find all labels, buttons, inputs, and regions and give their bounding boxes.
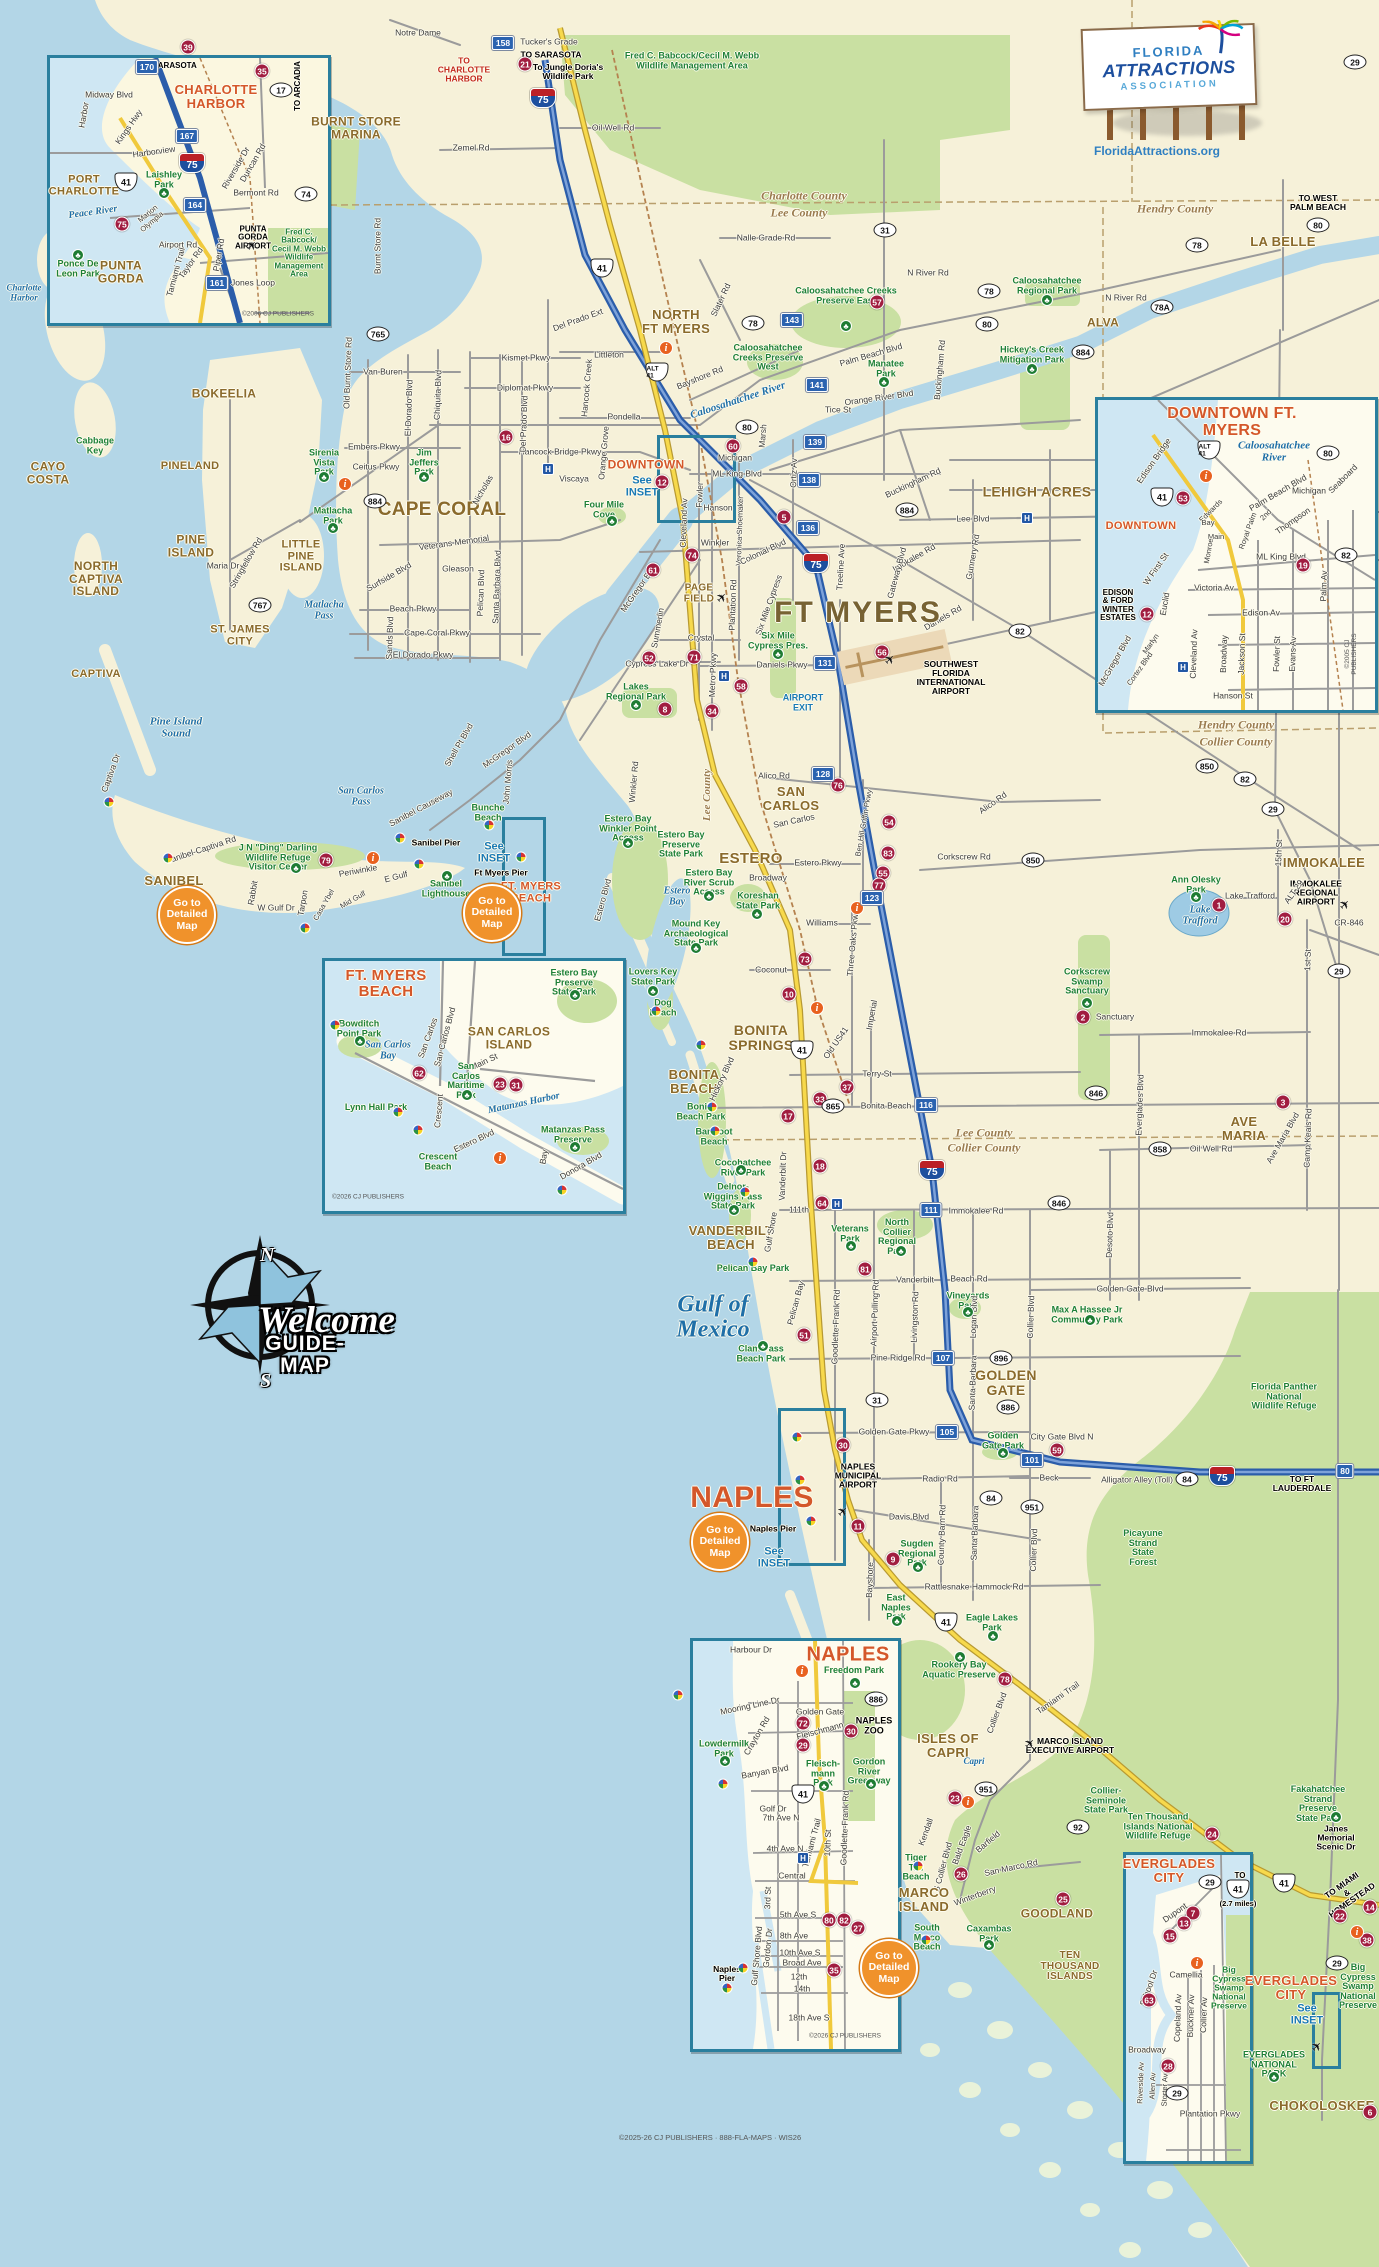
label-copeland-av: Copeland Av	[1173, 1994, 1184, 2042]
us-route-shield-41: 41	[792, 1785, 815, 1804]
label-freedom-park: Freedom Park	[824, 1666, 884, 1676]
attraction-marker-63[interactable]: 63	[1142, 1993, 1157, 2008]
label-el-dorado-blvd: El Dorado Blvd	[404, 380, 415, 437]
attraction-marker-58[interactable]: 58	[734, 679, 749, 694]
label-fowler-st: Fowler St	[1272, 636, 1282, 672]
attraction-marker-19[interactable]: 19	[1296, 558, 1311, 573]
label-north-ft-myers: NORTH FT MYERS	[642, 308, 710, 336]
attraction-marker-5[interactable]: 5	[777, 510, 792, 525]
label-st-james-city: ST. JAMES CITY	[210, 624, 270, 647]
state-route-shield-765: 765	[367, 327, 390, 342]
label-downtown: DOWNTOWN	[608, 459, 685, 472]
label-see-inset[interactable]: See INSET	[478, 841, 510, 864]
attraction-marker-3[interactable]: 3	[1276, 1095, 1291, 1110]
us-route-shield-41: 41	[791, 1041, 814, 1060]
county-route-shield-167: 167	[176, 129, 198, 143]
label-allen-av: Allen Av	[1149, 2072, 1158, 2099]
label-gordon-dr: Gordon Dr	[762, 1928, 774, 1968]
attraction-marker-51[interactable]: 51	[797, 1328, 812, 1343]
attraction-marker-9[interactable]: 9	[886, 1552, 901, 1567]
label-coconut: Coconut	[755, 966, 787, 975]
label-charlotte-harbor: CHARLOTTE HARBOR	[175, 83, 258, 111]
info-icon[interactable]: i	[795, 1664, 809, 1678]
state-route-shield-29: 29	[1199, 1875, 1222, 1890]
attraction-marker-28[interactable]: 28	[1161, 2059, 1176, 2074]
label-cabbage-key: Cabbage Key	[76, 436, 114, 455]
attraction-marker-79[interactable]: 79	[319, 853, 334, 868]
attraction-marker-62[interactable]: 62	[412, 1066, 427, 1081]
park-tree-icon: ♣	[818, 1780, 830, 1792]
attraction-marker-34[interactable]: 34	[705, 704, 720, 719]
attraction-marker-30[interactable]: 30	[836, 1438, 851, 1453]
label-lake-trafford: Lake Trafford	[1225, 892, 1275, 901]
us-route-shield-alt-41: ALT 41	[646, 363, 669, 382]
label-to-charlotte-harbor: TO CHARLOTTE HARBOR	[438, 57, 490, 84]
park-tree-icon: ♣	[1330, 1811, 1342, 1823]
county-route-shield-170: 170	[136, 60, 158, 74]
label-e-gulf: E Gulf	[383, 870, 408, 885]
beach-access-icon	[330, 1020, 341, 1031]
attraction-marker-25[interactable]: 25	[1056, 1892, 1071, 1907]
beach-access-icon	[300, 923, 311, 934]
hospital-icon: H	[718, 670, 730, 682]
label-n-river-rd: N River Rd	[1105, 294, 1147, 303]
state-route-shield-884: 884	[1072, 345, 1095, 360]
attraction-marker-30[interactable]: 30	[844, 1724, 859, 1739]
label-downtown: DOWNTOWN	[1106, 521, 1177, 533]
label-hendry-county: Hendry County	[1137, 203, 1213, 216]
park-tree-icon: ♣	[461, 1089, 473, 1101]
park-tree-icon: ♣	[845, 1240, 857, 1252]
attraction-marker-26[interactable]: 26	[954, 1867, 969, 1882]
label-broad-ave: Broad Ave	[782, 1959, 821, 1968]
info-icon[interactable]: i	[810, 1001, 824, 1015]
attraction-marker-31[interactable]: 31	[509, 1078, 524, 1093]
label-riverside-av: Riverside Av	[1136, 2062, 1145, 2104]
beach-access-icon	[163, 853, 174, 864]
beach-access-icon	[484, 820, 495, 831]
label-tamiami-trail: Tamiami Trail	[1035, 1680, 1081, 1716]
beach-access-icon	[651, 1006, 662, 1017]
label-3rd-st: 3rd St	[763, 1887, 773, 1910]
attraction-marker-1[interactable]: 1	[1212, 898, 1227, 913]
attraction-marker-57[interactable]: 57	[870, 295, 885, 310]
label-gulf-shore: Gulf Shore	[763, 1211, 779, 1253]
county-route-shield-161: 161	[206, 276, 228, 290]
label-slater-rd: Slater Rd	[709, 282, 732, 318]
label-bay: Bay	[538, 1149, 549, 1165]
label-collier-seminole-state-park: Collier- Seminole State Park	[1084, 1787, 1128, 1816]
attraction-marker-72[interactable]: 72	[796, 1716, 811, 1731]
attraction-marker-39[interactable]: 39	[181, 40, 196, 55]
attraction-marker-73[interactable]: 73	[798, 952, 813, 967]
label-bay: Bay	[1202, 519, 1215, 527]
attraction-marker-83[interactable]: 83	[881, 846, 896, 861]
county-route-shield-138: 138	[798, 473, 820, 487]
label-casa-ybel: Casa Ybel	[312, 888, 336, 922]
label-naples: NAPLES	[807, 1644, 890, 1665]
label-harborview: Harborview	[132, 145, 176, 160]
attraction-marker-80[interactable]: 80	[822, 1913, 837, 1928]
state-route-shield-78: 78	[978, 284, 1001, 299]
attraction-marker-11[interactable]: 11	[851, 1519, 866, 1534]
label-surfside-blvd: Surfside Blvd	[365, 561, 413, 594]
label-peace-river: Peace River	[68, 204, 118, 221]
park-tree-icon: ♣	[849, 1677, 861, 1689]
label-collier-blvd: Collier Blvd	[1026, 1295, 1036, 1338]
label-captiva: CAPTIVA	[71, 669, 121, 681]
hospital-icon: H	[831, 1198, 843, 1210]
info-icon[interactable]: i	[338, 477, 352, 491]
state-route-shield-29: 29	[1344, 55, 1367, 70]
label-matanzas-harbor: Matanzas Harbor	[487, 1091, 561, 1117]
attraction-marker-61[interactable]: 61	[646, 563, 661, 578]
label-5th-ave-s: 5th Ave S	[780, 1911, 816, 1920]
state-route-shield-82: 82	[1234, 772, 1257, 787]
label-van-buren: Van Buren	[363, 368, 403, 377]
attraction-marker-23[interactable]: 23	[493, 1077, 508, 1092]
label-collier-county: Collier County	[947, 1142, 1020, 1155]
label-crescent-beach: Crescent Beach	[419, 1152, 458, 1171]
go-to-detailed-map-button[interactable]: Go to Detailed Map	[860, 1939, 918, 1997]
label-fred-c-babcock-cecil-m-webb-wildlife-man: Fred C. Babcock/ Cecil M. Webb Wildlife …	[272, 229, 326, 280]
beach-access-icon	[792, 1432, 803, 1443]
label-north-captiva-island: NORTH CAPTIVA ISLAND	[69, 560, 123, 598]
label-estero: ESTERO	[719, 851, 782, 867]
county-route-shield-141: 141	[806, 378, 828, 392]
beach-access-icon	[738, 1963, 749, 1974]
county-route-shield-101: 101	[1021, 1453, 1043, 1467]
label-veterans-memorial: Veterans Memorial	[418, 534, 489, 553]
label-ave-maria: AVE MARIA	[1222, 1115, 1266, 1143]
label-page-field: PAGE FIELD	[684, 583, 714, 604]
attraction-marker-27[interactable]: 27	[851, 1921, 866, 1936]
label-embers-pkwy: Embers Pkwy	[348, 443, 400, 452]
county-route-shield-128: 128	[812, 767, 834, 781]
label-marco-island: MARCO ISLAND	[899, 1886, 950, 1914]
attraction-marker-60[interactable]: 60	[726, 439, 741, 454]
label-terry-st: Terry St	[862, 1070, 891, 1079]
label-collier-county: Collier County	[1199, 736, 1272, 749]
park-tree-icon: ♣	[1084, 1314, 1096, 1326]
label-beck: Beck	[1040, 1474, 1059, 1483]
beach-access-icon	[748, 1257, 759, 1268]
attraction-marker-15[interactable]: 15	[1163, 1929, 1178, 1944]
label-ponce-de-leon-park: Ponce De Leon Park	[56, 259, 100, 278]
label-winkler: Winkler	[701, 539, 729, 548]
state-route-shield-80: 80	[1307, 218, 1330, 233]
attraction-marker-17[interactable]: 17	[781, 1109, 796, 1124]
label-san-marco-rd: San Marco Rd	[983, 1858, 1038, 1878]
park-tree-icon: ♣	[569, 989, 581, 1001]
attraction-marker-22[interactable]: 22	[1333, 1909, 1348, 1924]
beach-access-icon	[104, 797, 115, 808]
label-to-ft-lauderdale: TO FT LAUDERDALE	[1264, 1475, 1341, 1493]
beach-access-icon	[413, 1125, 424, 1136]
label-estero-bay-preserve-state-park: Estero Bay Preserve State Park	[657, 831, 704, 860]
label-vanderbilt-dr: Vanderbilt Dr	[778, 1151, 789, 1200]
label-capri: Capri	[963, 1757, 984, 1767]
label-kings-hwy: Kings Hwy	[114, 108, 144, 146]
label-marsh: Marsh	[757, 424, 768, 448]
label-santa-barbara-blvd: Santa Barbara Blvd	[491, 550, 503, 624]
label-n-river-rd: N River Rd	[907, 269, 949, 278]
label-downtown-ft-myers: DOWNTOWN FT. MYERS	[1159, 406, 1306, 440]
label-san-carlos-bay: San Carlos Bay	[365, 1040, 411, 1061]
label-2005-cj-publishers: ©2005 CJ PUBLISHERS	[1345, 633, 1359, 674]
attraction-marker-52[interactable]: 52	[642, 651, 657, 666]
attraction-marker-8[interactable]: 8	[658, 702, 673, 717]
go-to-detailed-map-button[interactable]: Go to Detailed Map	[691, 1513, 749, 1571]
attraction-marker-12[interactable]: 12	[1140, 607, 1155, 622]
label-del-prado-ext: Del Prado Ext	[552, 307, 604, 333]
label-see-inset[interactable]: See INSET	[758, 1546, 790, 1569]
label-hickey-s-creek-mitigation-park: Hickey's Creek Mitigation Park	[1000, 345, 1065, 364]
label-periwinkle: Periwinkle	[338, 863, 378, 879]
county-route-shield-80: 80	[1336, 1464, 1353, 1478]
info-icon[interactable]: i	[366, 851, 380, 865]
attraction-marker-53[interactable]: 53	[1176, 491, 1191, 506]
label-naples-pier: Naples Pier	[750, 1525, 796, 1534]
beach-access-icon	[696, 1040, 707, 1051]
label-metro-pkwy: Metro Pkwy	[708, 653, 719, 698]
label-beach-rd: Beach Rd	[950, 1275, 987, 1284]
park-tree-icon: ♣	[1190, 891, 1202, 903]
label-barfield: Barfield	[974, 1829, 1002, 1854]
label-big-cypress-swamp-national-preserve: Big Cypress Swamp National Preserve	[1211, 1966, 1247, 2011]
interstate-75-shield: 75	[530, 88, 556, 108]
label-10th-st: 10th St	[823, 1829, 833, 1856]
label-jackson-st: Jackson St	[1237, 633, 1247, 675]
interstate-75-shield: 75	[919, 1160, 945, 1180]
label-ben-hill-griffin-pkwy: Ben Hill Griffin Pkwy	[854, 789, 874, 857]
label-8th-ave: 8th Ave	[780, 1932, 808, 1941]
label-goodlette-frank-rd: Goodlette-Frank Rd	[839, 1791, 851, 1866]
label-cayo-costa: CAYO COSTA	[27, 460, 70, 485]
label-la-belle: LA BELLE	[1250, 235, 1315, 249]
attraction-marker-18[interactable]: 18	[813, 1159, 828, 1174]
label-burnt-store-marina: BURNT STORE MARINA	[311, 115, 401, 140]
attraction-marker-16[interactable]: 16	[499, 430, 514, 445]
label-cleveland-av: Cleveland Av	[1189, 629, 1200, 679]
label-san-carlos-blvd: San Carlos Blvd	[433, 1006, 457, 1067]
attraction-marker-10[interactable]: 10	[782, 987, 797, 1002]
label-crescent: Crescent	[433, 1094, 445, 1129]
label-buckner-av: Buckner Av	[1186, 1994, 1196, 2037]
attraction-marker-12[interactable]: 12	[655, 475, 670, 490]
label-lee-county: Lee County	[702, 769, 714, 821]
attraction-marker-24[interactable]: 24	[1205, 1827, 1220, 1842]
park-tree-icon: ♣	[962, 1306, 974, 1318]
beach-access-icon	[921, 1935, 932, 1946]
park-tree-icon: ♣	[1026, 363, 1038, 375]
label-w-first-st: W First St	[1142, 551, 1171, 587]
state-route-shield-846: 846	[1048, 1196, 1071, 1211]
attraction-marker-82[interactable]: 82	[837, 1913, 852, 1928]
label-williams: Williams	[806, 919, 838, 928]
label-pine-island-sound: Pine Island Sound	[150, 716, 202, 739]
state-route-shield-886: 886	[865, 1692, 888, 1707]
attraction-marker-54[interactable]: 54	[882, 815, 897, 830]
label-corkscrew-swamp-sanctuary: Corkscrew Swamp Sanctuary	[1064, 968, 1110, 997]
label-treeline-ave: Treeline Ave	[835, 543, 846, 590]
label-caloosahatchee-regional-park: Caloosahatchee Regional Park	[1012, 276, 1081, 295]
attraction-marker-13[interactable]: 13	[1177, 1916, 1192, 1931]
label-rookery-bay-aquatic-preserve: Rookery Bay Aquatic Preserve	[922, 1660, 996, 1679]
attraction-marker-78[interactable]: 78	[998, 1672, 1013, 1687]
label-monroe: Monroe	[1203, 538, 1215, 564]
info-icon[interactable]: i	[961, 1795, 975, 1809]
label-matlacha-pass: Matlacha Pass	[304, 600, 343, 621]
state-route-shield-78A: 78A	[1151, 300, 1174, 315]
label-port-charlotte: PORT CHARLOTTE	[49, 174, 120, 197]
label-notre-dame: Notre Dame	[395, 29, 441, 38]
label-pine-island: PINE ISLAND	[168, 533, 214, 558]
label-buckingham-rd: Buckingham Rd	[884, 466, 942, 500]
info-icon[interactable]: i	[659, 341, 673, 355]
label-see-inset[interactable]: See INSET	[626, 475, 658, 498]
park-tree-icon: ♣	[997, 1447, 1009, 1459]
label-2006-cj-publishers: ©2006 CJ PUBLISHERS	[242, 312, 314, 319]
label-estero-pkwy: Estero Pkwy	[794, 859, 841, 868]
attraction-marker-2[interactable]: 2	[1076, 1010, 1091, 1025]
label-ave-maria-blvd: Ave Maria Blvd	[1265, 1111, 1301, 1165]
label-alligator-alley-toll: Alligator Alley (Toll)	[1101, 1476, 1173, 1485]
label-1st-st: 1st St	[1303, 949, 1313, 971]
airport-icon: ✈	[1307, 2037, 1326, 2056]
attraction-marker-75[interactable]: 75	[115, 217, 130, 232]
attraction-marker-6[interactable]: 6	[1363, 2105, 1378, 2120]
attraction-marker-64[interactable]: 64	[815, 1196, 830, 1211]
us-route-shield-41: 41	[115, 173, 138, 192]
label-everglades-city: EVERGLADES CITY	[1245, 1974, 1338, 2002]
label-charlotte-county: Charlotte County	[761, 190, 847, 203]
label-chokoloskee: CHOKOLOSKEE	[1269, 2099, 1374, 2113]
label-2-7-miles: (2.7 miles)	[1220, 1900, 1257, 1908]
label-gateway-blvd: Gateway Blvd	[886, 547, 908, 600]
label-bald-eagle: Bald Eagle	[951, 1824, 974, 1866]
info-icon[interactable]: i	[1199, 469, 1213, 483]
labels-layer: Notre DameTucker's GradeTO SARASOTATo Ju…	[0, 0, 1379, 2267]
park-tree-icon: ♣	[751, 908, 763, 920]
park-tree-icon: ♣	[772, 648, 784, 660]
county-route-shield-136: 136	[797, 521, 819, 535]
park-tree-icon: ♣	[865, 1778, 877, 1790]
label-camp-keais-rd: Camp Keais Rd	[1302, 1108, 1313, 1168]
label-michigan: Michigan	[718, 454, 752, 463]
attraction-marker-81[interactable]: 81	[858, 1262, 873, 1277]
label-corkscrew-rd: Corkscrew Rd	[937, 853, 990, 862]
label-livingston-rd: Livingston Rd	[910, 1291, 921, 1343]
attraction-marker-59[interactable]: 59	[1050, 1443, 1065, 1458]
label-jones-loop: Jones Loop	[231, 279, 275, 288]
label-12th: 12th	[791, 1973, 808, 1982]
go-to-detailed-map-button[interactable]: Go to Detailed Map	[158, 886, 216, 944]
label-crayton-rd: Crayton Rd	[742, 1715, 771, 1757]
beach-access-icon	[806, 1516, 817, 1527]
label-naples: NAPLES	[690, 1482, 814, 1514]
attraction-marker-35[interactable]: 35	[827, 1963, 842, 1978]
label-immokalee-rd: Immokalee Rd	[949, 1207, 1004, 1216]
info-icon[interactable]: i	[1190, 1956, 1204, 1970]
attraction-marker-37[interactable]: 37	[840, 1080, 855, 1095]
attraction-marker-74[interactable]: 74	[685, 548, 700, 563]
label-pelican-bay: Pelican Bay	[786, 1280, 806, 1326]
state-route-shield-865: 865	[822, 1099, 845, 1114]
state-route-shield-951: 951	[1021, 1500, 1044, 1515]
label-chiquita-blvd: Chiquita Blvd	[433, 370, 444, 420]
attraction-marker-29[interactable]: 29	[796, 1738, 811, 1753]
label-city-gate-blvd-n: City Gate Blvd N	[1031, 1433, 1094, 1442]
label-janes-memorial-scenic-dr: Janes Memorial Scenic Dr	[1316, 1825, 1355, 1852]
label-evans-av: Evans Av	[1288, 636, 1298, 672]
label-victoria-av: Victoria Av	[1194, 584, 1234, 593]
park-tree-icon: ♣	[703, 890, 715, 902]
beach-access-icon	[707, 1102, 718, 1113]
label-picayune-strand-state-forest: Picayune Strand State Forest	[1123, 1529, 1163, 1567]
label-imperial: Imperial	[865, 999, 879, 1030]
attraction-marker-20[interactable]: 20	[1278, 912, 1293, 927]
state-route-shield-886: 886	[997, 1400, 1020, 1415]
label-piper-rd: Piper Rd	[212, 238, 227, 272]
label-euclid: Euclid	[1159, 592, 1172, 616]
label-san-carlos: San Carlos	[772, 812, 815, 830]
label-royal-palm: Royal Palm	[1238, 512, 1259, 551]
label-little-pine-island: LITTLE PINE ISLAND	[280, 540, 323, 575]
beach-access-icon	[718, 1779, 729, 1790]
label-j-n-ding-darling-wildlife-refuge-visitor: J N "Ding" Darling Wildlife Refuge Visit…	[239, 844, 318, 873]
state-route-shield-884: 884	[896, 503, 919, 518]
label-three-oaks-pkwy: Three Oaks Pkwy	[846, 909, 861, 977]
us-route-shield-41: 41	[1227, 1880, 1250, 1899]
go-to-detailed-map-button[interactable]: Go to Detailed Map	[463, 884, 521, 942]
label-everglades-blvd: Everglades Blvd	[1134, 1074, 1145, 1136]
state-route-shield-82: 82	[1335, 548, 1358, 563]
us-route-shield-alt-41: ALT 41	[1198, 441, 1221, 460]
label-2026-cj-publishers: ©2026 CJ PUBLISHERS	[809, 2034, 881, 2041]
attraction-marker-71[interactable]: 71	[687, 650, 702, 665]
us-route-shield-41: 41	[1273, 1874, 1296, 1893]
label-buckingham-rd: Buckingham Rd	[933, 340, 947, 401]
label-santa-barbara: Santa Barbara	[970, 1505, 981, 1560]
label-hanson-st: Hanson St	[1213, 692, 1253, 701]
label-edison-bridge: Edison Bridge	[1135, 437, 1173, 486]
state-route-shield-80: 80	[976, 317, 999, 332]
label-see-inset[interactable]: See INSET	[1291, 2003, 1323, 2026]
interstate-75-shield: 75	[179, 153, 205, 173]
label-tarpon: Tarpon	[296, 889, 309, 916]
attraction-marker-21[interactable]: 21	[518, 57, 533, 72]
label-airport-exit[interactable]: AIRPORT EXIT	[783, 693, 824, 712]
beach-access-icon	[393, 1107, 404, 1118]
label-davis-blvd: Davis Blvd	[889, 1513, 929, 1522]
state-route-shield-896: 896	[990, 1351, 1013, 1366]
label-maria-dr: Maria Dr	[207, 562, 240, 571]
label-central: Central	[778, 1872, 805, 1881]
label-mooring-line-dr: Mooring Line Dr	[719, 1695, 780, 1716]
label-estero-blvd: Estero Blvd	[593, 878, 613, 922]
attraction-marker-14[interactable]: 14	[1363, 1900, 1378, 1915]
info-icon[interactable]: i	[493, 1151, 507, 1165]
info-icon[interactable]: i	[1350, 1925, 1364, 1939]
label-lehigh-acres: LEHIGH ACRES	[983, 485, 1092, 500]
label-sanibel-lighthouse: Sanibel Lighthouse	[422, 879, 471, 898]
label-bokeelia: BOKEELIA	[192, 388, 256, 401]
attraction-marker-35[interactable]: 35	[255, 64, 270, 79]
label-golden-gate-pkwy: Golden Gate Pkwy	[859, 1428, 930, 1437]
label-alico-rd: Alico Rd	[977, 790, 1008, 816]
label-lee-county: Lee County	[771, 207, 828, 220]
